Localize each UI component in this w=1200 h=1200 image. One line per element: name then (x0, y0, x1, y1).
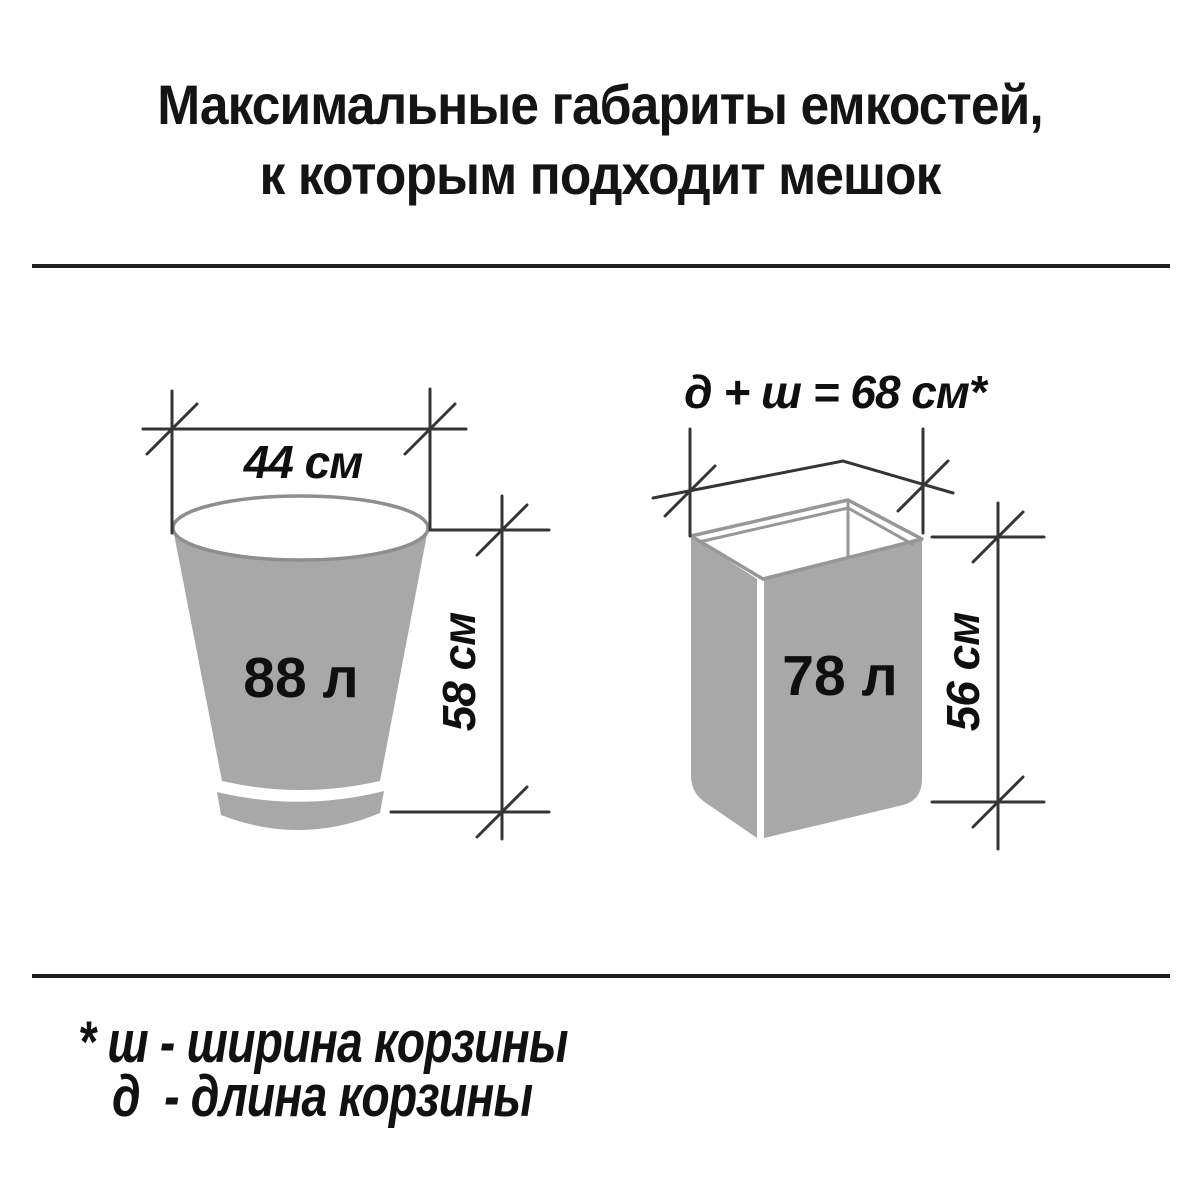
basket-height-label: 56 см (937, 612, 989, 732)
basket-dimension-sum-label: д + ш = 68 см* (684, 366, 989, 418)
bucket-base (217, 791, 384, 830)
basket-volume-label: 78 л (782, 644, 897, 708)
basket-left-face (691, 536, 757, 838)
basket-top-dimension-line (653, 461, 953, 498)
bucket-volume-label: 88 л (243, 646, 358, 710)
bucket-rim-ellipse (173, 496, 428, 560)
basket-diagram: д + ш = 68 см* 56 см 78 л (653, 366, 1044, 849)
bucket-width-label: 44 см (243, 436, 364, 488)
infographic-page: Максимальные габариты емкостей, к которы… (0, 0, 1200, 1200)
bucket-diagram: 44 см 58 см 88 л (143, 389, 549, 839)
divider-bottom (32, 974, 1170, 978)
footnote-line-2: д - длина корзины (112, 1068, 532, 1126)
bucket-height-label: 58 см (433, 612, 485, 732)
